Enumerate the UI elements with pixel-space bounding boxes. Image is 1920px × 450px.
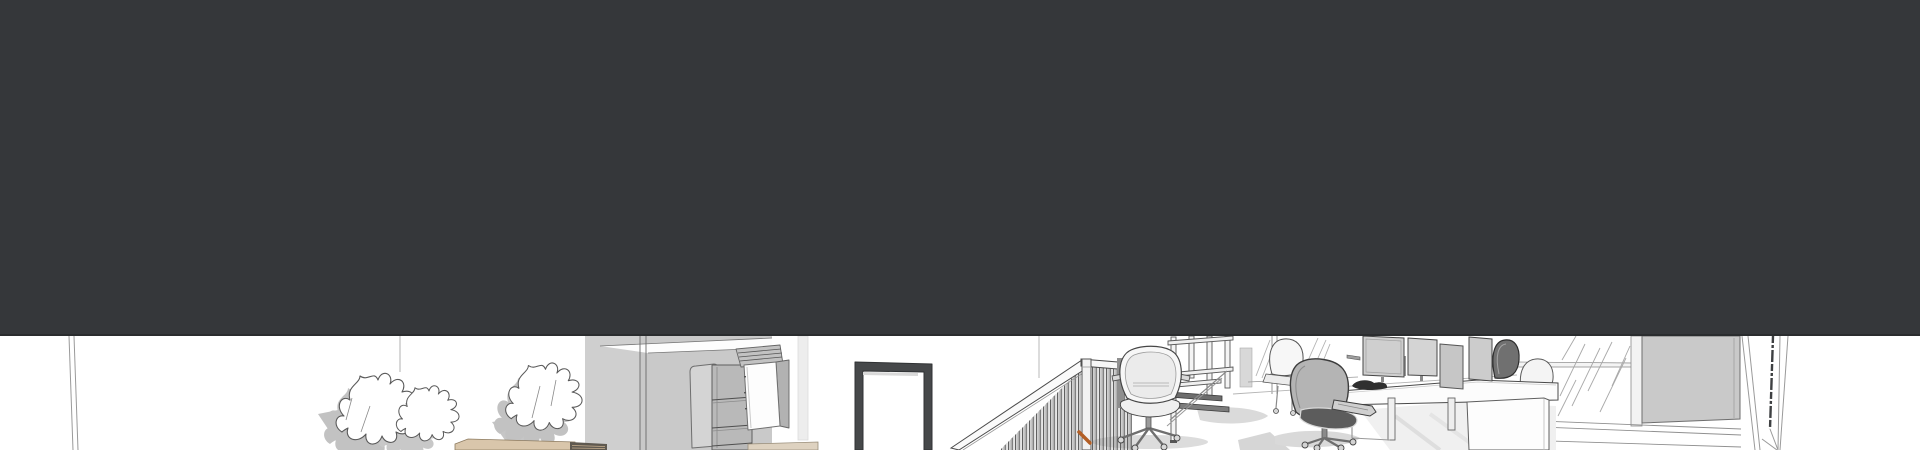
dark-header-band: [0, 0, 1920, 336]
window-mullion: [1631, 336, 1642, 426]
wall-pipe: [798, 336, 808, 440]
monitor: [1469, 337, 1492, 381]
under-desk-pedestal: [1467, 398, 1549, 450]
desk-leg: [1388, 398, 1395, 440]
monitor: [1363, 336, 1404, 377]
privacy-divider: [1440, 344, 1463, 389]
monitor: [1408, 338, 1437, 376]
storage-cabinet: [585, 336, 789, 450]
screenshot-root: [0, 0, 1920, 450]
window-blind: [1642, 336, 1740, 423]
office-scene-svg: [0, 336, 1920, 450]
office-illustration: [0, 336, 1920, 450]
